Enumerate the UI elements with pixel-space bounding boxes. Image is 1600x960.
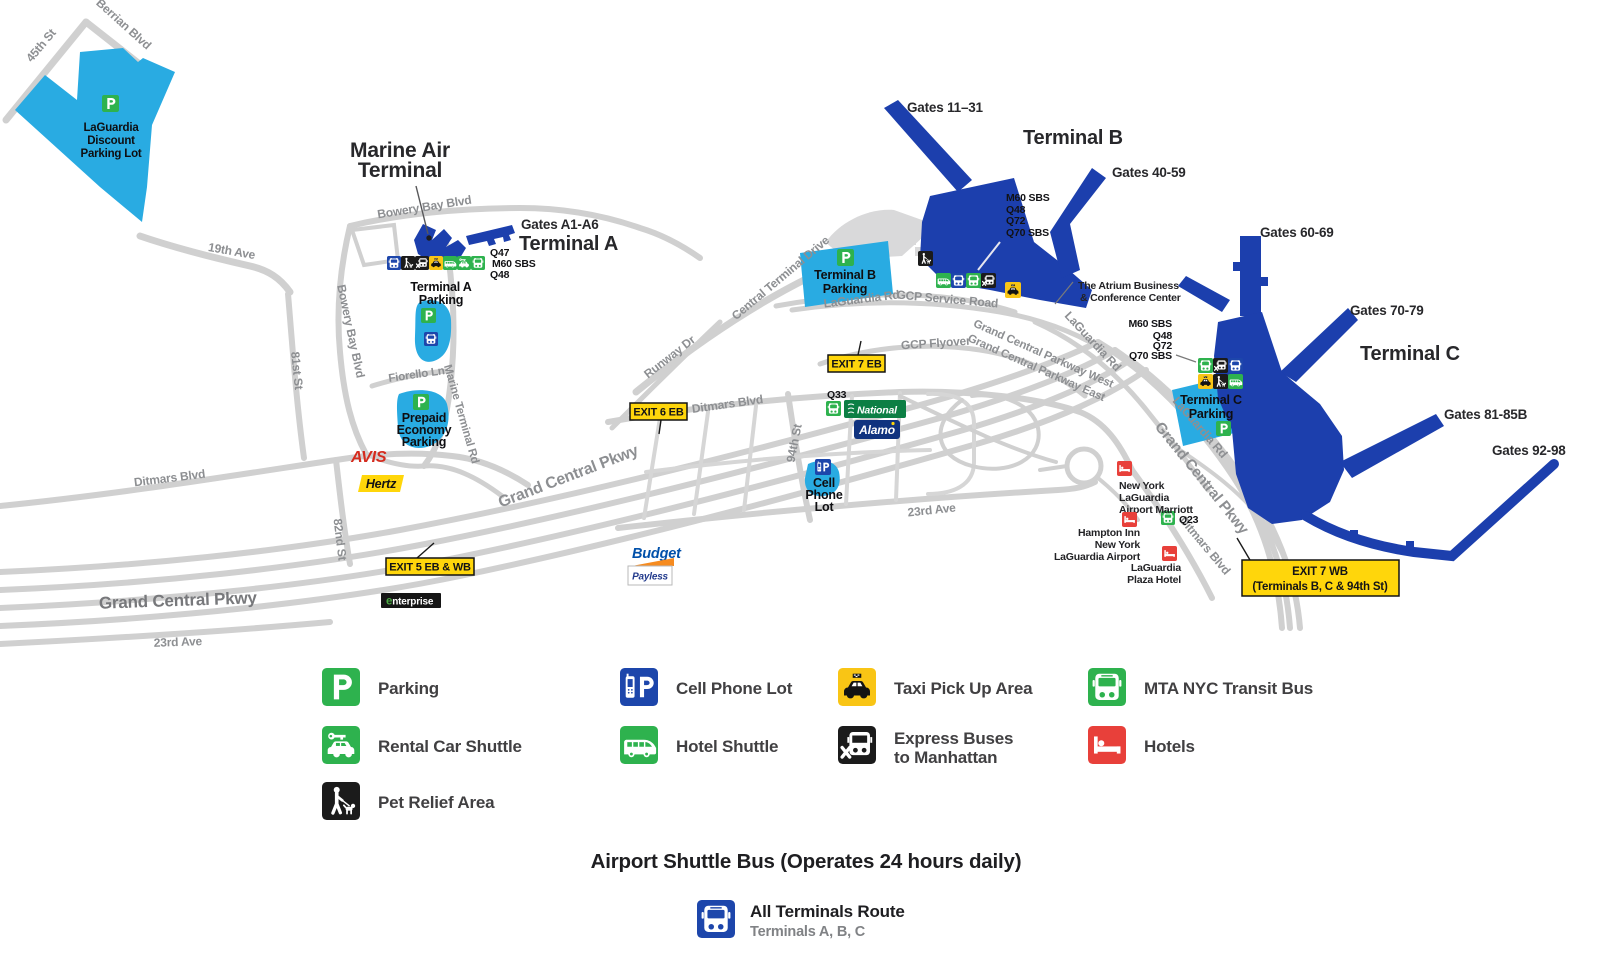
legend-taxi-label: Taxi Pick Up Area	[894, 679, 1033, 698]
avis-logo: AVIS	[350, 449, 387, 466]
payless-logo: Payless	[628, 566, 672, 585]
transit-bus-icon	[1088, 668, 1126, 706]
hotel-shuttle-icon	[443, 256, 457, 270]
svg-text:Budget: Budget	[632, 546, 682, 562]
road-ditmars-blvd	[0, 392, 1212, 598]
legend-hotel-shuttle-label: Hotel Shuttle	[676, 737, 778, 756]
rental-car-shuttle-icon	[322, 726, 360, 764]
terminal-c-route-q70: Q70 SBS	[1129, 350, 1172, 362]
prepaid-parking-label3: Parking	[402, 435, 446, 449]
legend: Parking Cell Phone Lot Taxi Pick Up Area…	[322, 668, 1313, 820]
terminal-c-pier-60-69	[1240, 236, 1261, 316]
road-label-23rd-bottom: 23rd Ave	[154, 634, 203, 650]
atrium-label-line1: The Atrium Business	[1078, 280, 1179, 292]
plaza-label2: Plaza Hotel	[1127, 574, 1181, 586]
road-label-81st-st: 81st St	[288, 351, 306, 390]
pet-relief-icon	[918, 251, 933, 266]
terminal-b-route-m60: M60 SBS	[1006, 192, 1050, 204]
exit-6-badge: EXIT 6 EB	[630, 403, 687, 420]
terminal-b-parking-label1: Terminal B	[814, 268, 876, 282]
discount-lot-label2: Discount	[87, 135, 135, 147]
svg-text:Payless: Payless	[632, 572, 668, 583]
terminal-c-west-arm	[1178, 276, 1230, 312]
transit-bus-icon	[471, 256, 485, 270]
atrium-label-line2: & Conference Center	[1080, 292, 1181, 304]
gates-a1-a6-label: Gates A1-A6	[521, 217, 599, 232]
terminal-c-route-m60: M60 SBS	[1128, 318, 1172, 330]
svg-text:Alamo: Alamo	[858, 423, 895, 437]
terminal-b-parking-label2: Parking	[823, 282, 867, 296]
plaza-label1: LaGuardia	[1131, 562, 1181, 574]
express-bus-icon	[838, 726, 876, 764]
hertz-logo: Hertz	[358, 475, 404, 492]
terminal-c-pier-92-98	[1306, 464, 1554, 556]
terminal-c-parking-label2: Parking	[1189, 407, 1233, 421]
hampton-label1: Hampton Inn	[1078, 527, 1140, 539]
cell-phone-lot-label3: Lot	[815, 500, 835, 514]
budget-logo: Budget	[632, 546, 682, 566]
gates-70-79-label: Gates 70-79	[1350, 303, 1424, 318]
gates-60-69-label: Gates 60-69	[1260, 225, 1334, 240]
legend-parking-label: Parking	[378, 679, 439, 698]
express-bus-icon	[981, 273, 996, 288]
marine-air-terminal-label2: Terminal	[358, 159, 442, 182]
exit-7-wb-badge: EXIT 7 WB (Terminals B, C & 94th St)	[1242, 560, 1399, 596]
discount-lot-label3: Parking Lot	[80, 148, 141, 160]
national-logo: National	[844, 400, 906, 418]
shuttle-heading: Airport Shuttle Bus (Operates 24 hours d…	[591, 850, 1022, 873]
hotels-icon	[1088, 726, 1126, 764]
terminal-b-route-q70: Q70 SBS	[1006, 227, 1049, 239]
all-terminals-shuttle-bus-icon	[697, 900, 735, 938]
exit-7-eb-label: EXIT 7 EB	[831, 359, 881, 371]
gates-40-59-label: Gates 40-59	[1112, 165, 1186, 180]
alamo-logo: Alamo	[854, 420, 900, 439]
hotel-shuttle-icon	[936, 273, 951, 288]
taxi-icon	[429, 256, 443, 270]
terminal-a-gates-bar	[466, 225, 515, 246]
transit-bus-icon	[966, 273, 981, 288]
shuttle-bus-icon	[1228, 358, 1243, 373]
hotels-icon	[1162, 546, 1177, 561]
hotel-shuttle-icon	[1228, 374, 1243, 389]
transit-bus-icon	[826, 401, 841, 416]
parking-icon	[322, 668, 360, 706]
hotels-icon	[1117, 461, 1132, 476]
parking-icon	[102, 95, 119, 112]
exit-7-wb-label2: (Terminals B, C & 94th St)	[1252, 581, 1388, 593]
terminal-a-label: Terminal A	[519, 233, 618, 255]
exit-5-label: EXIT 5 EB & WB	[389, 562, 471, 574]
enterprise-logo: enterprise	[381, 593, 441, 608]
hampton-label3: LaGuardia Airport	[1054, 551, 1141, 563]
express-bus-icon	[415, 256, 429, 270]
gates-81-85b-label: Gates 81-85B	[1444, 407, 1528, 422]
terminal-c-pier-81-85b	[1340, 414, 1444, 478]
express-bus-icon	[1213, 358, 1228, 373]
laguardia-airport-map: 45th St Berrian Blvd 19th Ave 81st St Bo…	[0, 0, 1600, 960]
terminal-a-route-q48: Q48	[490, 269, 510, 281]
road-label-berrian-blvd: Berrian Blvd	[93, 0, 154, 52]
legend-rental-car-label: Rental Car Shuttle	[378, 737, 522, 756]
all-terminals-route-label: All Terminals Route	[750, 902, 905, 921]
terminal-b-route-q72: Q72	[1006, 215, 1026, 227]
marriott-label2: LaGuardia	[1119, 492, 1169, 504]
q33-label: Q33	[827, 389, 847, 401]
rental-car-shuttle-icon	[457, 256, 471, 270]
cell-phone-lot-icon	[620, 668, 658, 706]
svg-text:Hertz: Hertz	[366, 477, 397, 491]
shuttle-bus-icon	[387, 256, 401, 270]
terminal-c-label: Terminal C	[1360, 343, 1460, 365]
svg-text:National: National	[857, 405, 898, 417]
hampton-label2: New York	[1095, 539, 1141, 551]
legend-hotels-label: Hotels	[1144, 737, 1195, 756]
hotel-shuttle-icon	[620, 726, 658, 764]
parking-icon	[421, 308, 436, 323]
discount-lot-label1: LaGuardia	[83, 122, 139, 134]
gates-11-31-label: Gates 11–31	[907, 100, 984, 115]
shuttle-section: Airport Shuttle Bus (Operates 24 hours d…	[591, 850, 1022, 940]
exit-7-wb-label1: EXIT 7 WB	[1292, 566, 1348, 578]
exit-5-badge: EXIT 5 EB & WB	[386, 558, 474, 575]
exit-7-eb-badge: EXIT 7 EB	[828, 355, 885, 372]
taxi-icon	[838, 668, 876, 706]
terminal-a-parking-label2: Parking	[419, 293, 463, 307]
transit-bus-icon	[1198, 358, 1213, 373]
road-label-23rd-mid: 23rd Ave	[907, 500, 957, 519]
marriott-label1: New York	[1119, 480, 1165, 492]
parking-icon	[837, 249, 854, 266]
svg-text:enterprise: enterprise	[386, 596, 434, 608]
terminal-b-label: Terminal B	[1023, 127, 1123, 149]
airport-map-svg: 45th St Berrian Blvd 19th Ave 81st St Bo…	[0, 0, 1600, 960]
legend-pet-relief-label: Pet Relief Area	[378, 793, 495, 812]
terminal-b-pier-40-59	[1050, 168, 1106, 278]
pet-relief-icon	[1213, 374, 1228, 389]
taxi-icon	[1005, 282, 1021, 298]
legend-transit-bus-label: MTA NYC Transit Bus	[1144, 679, 1313, 698]
taxi-icon	[1198, 374, 1213, 389]
cell-phone-lot-icon	[815, 459, 831, 475]
shuttle-bus-icon	[951, 273, 966, 288]
pet-relief-icon	[401, 256, 415, 270]
hotels-icon	[1122, 512, 1137, 527]
pet-relief-icon	[322, 782, 360, 820]
gates-92-98-label: Gates 92-98	[1492, 443, 1566, 458]
parking-icon	[1216, 421, 1231, 436]
road-label-fiorello-ln: Fiorello Ln	[388, 365, 446, 385]
terminal-c-pier-70-79	[1280, 308, 1358, 382]
exit-6-label: EXIT 6 EB	[633, 407, 683, 419]
parking-icon	[413, 394, 429, 410]
legend-cell-phone-lot-label: Cell Phone Lot	[676, 679, 793, 698]
legend-express-bus-label1: Express Buses	[894, 729, 1013, 748]
shuttle-bus-icon	[424, 332, 438, 346]
road-label-ditmars-mid: Ditmars Blvd	[691, 392, 764, 416]
terminal-a-parking-label1: Terminal A	[410, 280, 471, 294]
terminal-c-parking-label1: Terminal C	[1180, 393, 1242, 407]
all-terminals-route-sub: Terminals A, B, C	[750, 924, 866, 940]
legend-express-bus-label2: to Manhattan	[894, 748, 997, 767]
